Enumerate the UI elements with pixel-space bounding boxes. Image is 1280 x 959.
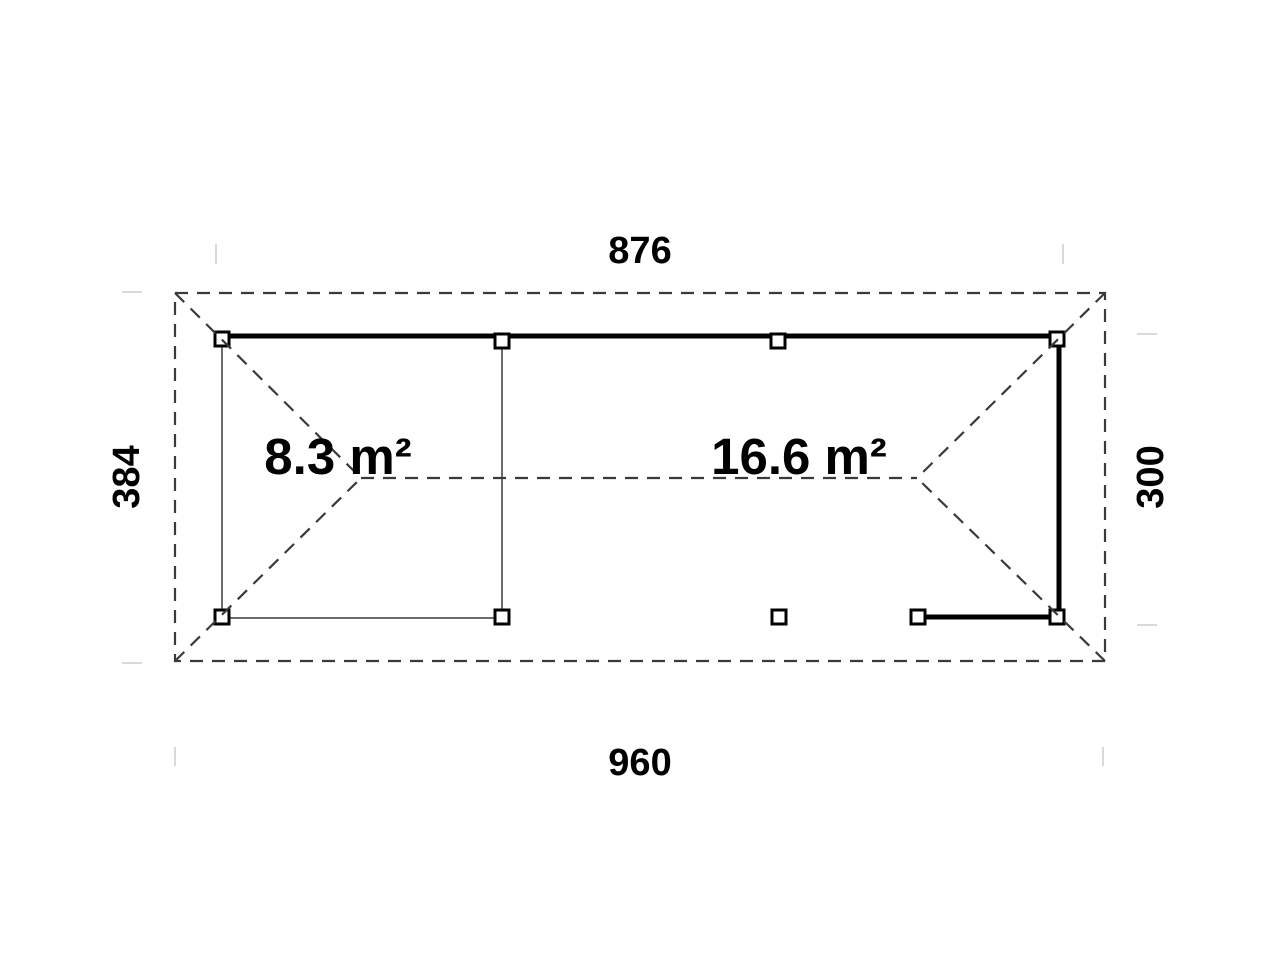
dimension-label-bottom: 960 [608, 742, 671, 784]
post [495, 334, 509, 348]
hip-line-top-right [917, 293, 1105, 478]
post [1050, 610, 1064, 624]
hip-line-bottom-left [175, 478, 361, 661]
area-label-large-room: 16.6 m² [711, 428, 887, 485]
floor-plan-drawing: 876 960 384 300 8.3 m² 16.6 m² [0, 0, 1280, 959]
post [911, 610, 925, 624]
floor-plan-page: 876 960 384 300 8.3 m² 16.6 m² [0, 0, 1280, 959]
post [495, 610, 509, 624]
post [215, 610, 229, 624]
dimension-extension-ticks [122, 244, 1157, 766]
dimension-label-right: 300 [1130, 445, 1172, 508]
hip-line-bottom-right [917, 478, 1105, 661]
post [771, 334, 785, 348]
post [772, 610, 786, 624]
dimension-label-left: 384 [106, 445, 148, 508]
area-label-small-room: 8.3 m² [264, 428, 411, 485]
dimension-label-top: 876 [608, 230, 671, 272]
labels: 876 960 384 300 8.3 m² 16.6 m² [106, 230, 1172, 784]
